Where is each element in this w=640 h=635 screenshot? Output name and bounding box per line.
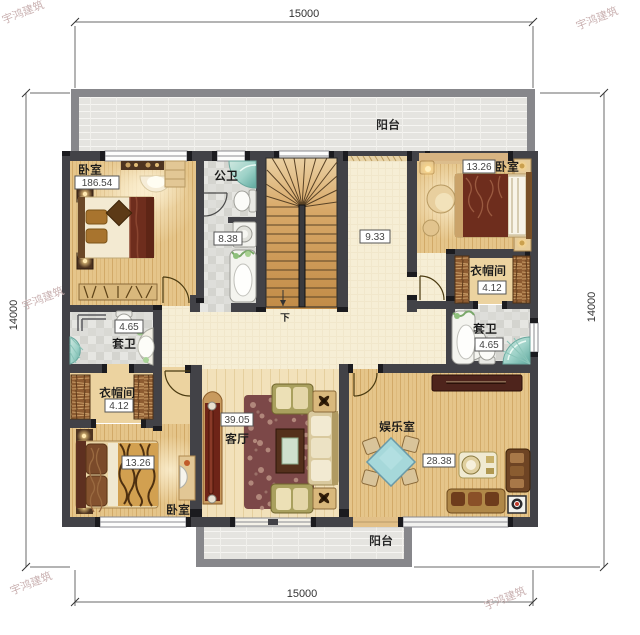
- svg-text:14000: 14000: [8, 300, 20, 331]
- svg-text:39.05: 39.05: [224, 415, 249, 426]
- svg-text:4.65: 4.65: [119, 322, 139, 333]
- svg-text:4.12: 4.12: [482, 283, 502, 294]
- svg-text:8.38: 8.38: [218, 234, 238, 245]
- svg-text:28.38: 28.38: [426, 456, 451, 467]
- svg-text:13.26: 13.26: [466, 162, 491, 173]
- svg-text:9.33: 9.33: [365, 232, 385, 243]
- svg-text:13.26: 13.26: [125, 458, 150, 469]
- svg-text:4.65: 4.65: [479, 340, 499, 351]
- svg-text:14000: 14000: [586, 292, 598, 323]
- svg-text:4.12: 4.12: [109, 401, 129, 412]
- svg-text:186.54: 186.54: [82, 178, 113, 189]
- svg-text:15000: 15000: [289, 8, 320, 20]
- svg-text:15000: 15000: [287, 588, 318, 600]
